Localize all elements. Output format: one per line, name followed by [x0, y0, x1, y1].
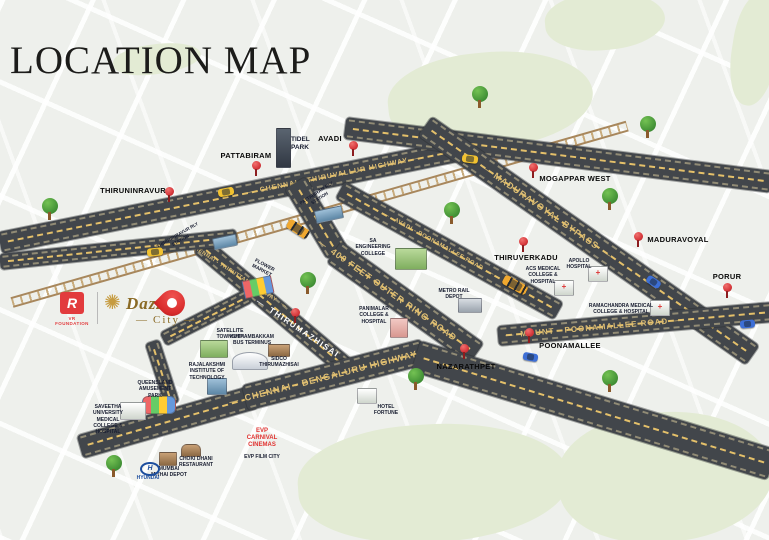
project-location-pin-icon: [159, 290, 185, 326]
rajalakshmi-label: RAJALAKSHMI INSTITUTE OF TECHNOLOGY: [184, 362, 230, 381]
tree-icon: [42, 198, 58, 214]
tree-icon: [444, 202, 460, 218]
nazarathpet-label: NAZARATHPET: [437, 362, 496, 371]
page-title: LOCATION MAP: [10, 38, 311, 83]
tree-icon: [602, 370, 618, 386]
saveetha-label: SAVEETHA UNIVERSITY MEDICAL COLLEGE & HO…: [88, 404, 128, 435]
thiruninravur-label: THIRUNINRAVUR: [100, 186, 166, 195]
mogappar-west-label: MOGAPPAR WEST: [539, 174, 610, 183]
sidco-label: SIDCO THIRUMAZHISAI: [258, 356, 300, 369]
thiruverkadu-pin-icon: [518, 237, 528, 253]
hyundai-label: HYUNDAI: [132, 475, 164, 481]
vr-foundation-logo-mark: R: [60, 292, 84, 314]
poonamallee-pin-icon: [524, 328, 534, 344]
green-patch: [543, 0, 668, 55]
vr-foundation-logo: R VR FOUNDATION: [52, 292, 92, 326]
tree-icon: [300, 272, 316, 288]
vr-foundation-label: VR FOUNDATION: [52, 316, 92, 326]
tree-icon: [472, 86, 488, 102]
engineering-college-icon: [395, 248, 427, 270]
mithai-depot-icon: [159, 452, 177, 466]
apollo-hospital-label: APOLLO HOSPITAL: [563, 258, 595, 271]
engineering-college-label: SA ENGINEERING COLLEGE: [353, 238, 393, 257]
tidel-park-label: TIDEL PARK: [291, 136, 321, 152]
green-patch: [294, 415, 574, 540]
car-icon: [522, 352, 538, 362]
kuthambakkam-terminus-label: KUTHAMBAKKAM BUS TERMINUS: [228, 334, 276, 347]
tree-icon: [602, 188, 618, 204]
thirumazhisai-pin-icon: [290, 308, 300, 324]
logo-divider: [97, 292, 98, 324]
hyundai-logo-icon: H: [140, 462, 160, 476]
avadi-label: AVADI: [318, 134, 342, 143]
hotel-building-icon: [357, 388, 377, 404]
porur-label: PORUR: [713, 272, 742, 281]
porur-pin-icon: [722, 283, 732, 299]
pattabiram-label: PATTABIRAM: [221, 151, 272, 160]
evp-film-city-label: EVP FILM CITY: [240, 454, 284, 460]
metro-rail-depot-label: METRO RAIL DEPOT: [436, 288, 472, 301]
sunburst-icon: ✺: [104, 290, 121, 315]
tree-icon: [106, 455, 122, 471]
green-patch: [724, 0, 769, 109]
ramachandra-label: RAMACHANDRA MEDICAL COLLEGE & HOSPITAL: [583, 303, 659, 316]
tree-icon: [408, 368, 424, 384]
avadi-pin-icon: [348, 141, 358, 157]
poonamallee-label: POONAMALLEE: [539, 341, 601, 350]
mogappar-west-pin-icon: [528, 163, 538, 179]
acs-medical-label: ACS MEDICAL COLLEGE & HOSPITAL: [521, 266, 565, 285]
map-canvas: CHENNAI - THIRUVALLUR HIGHWAY MADURAVOYA…: [0, 0, 769, 540]
car-icon: [740, 319, 756, 328]
hotel-label: HOTEL FORTUNE: [370, 404, 402, 417]
tidel-park-building-icon: [276, 128, 291, 168]
thiruverkadu-label: THIRUVERKADU: [494, 253, 558, 262]
pattabiram-pin-icon: [251, 161, 261, 177]
maduravoyal-label: MADURAVOYAL: [647, 235, 708, 244]
satellite-township-icon: [200, 340, 228, 358]
nazarathpet-pin-icon: [459, 344, 469, 360]
queensland-label: QUEENSLAND AMUSEMENT PARK: [132, 380, 178, 399]
evp-carnival-logo: EVP CARNIVAL CINEMAS: [244, 428, 280, 449]
panimalar-label: PANIMALAR COLLEGE & HOSPITAL: [352, 306, 396, 325]
taxi-icon: [147, 247, 164, 257]
maduravoyal-pin-icon: [633, 232, 643, 248]
tree-icon: [640, 116, 656, 132]
